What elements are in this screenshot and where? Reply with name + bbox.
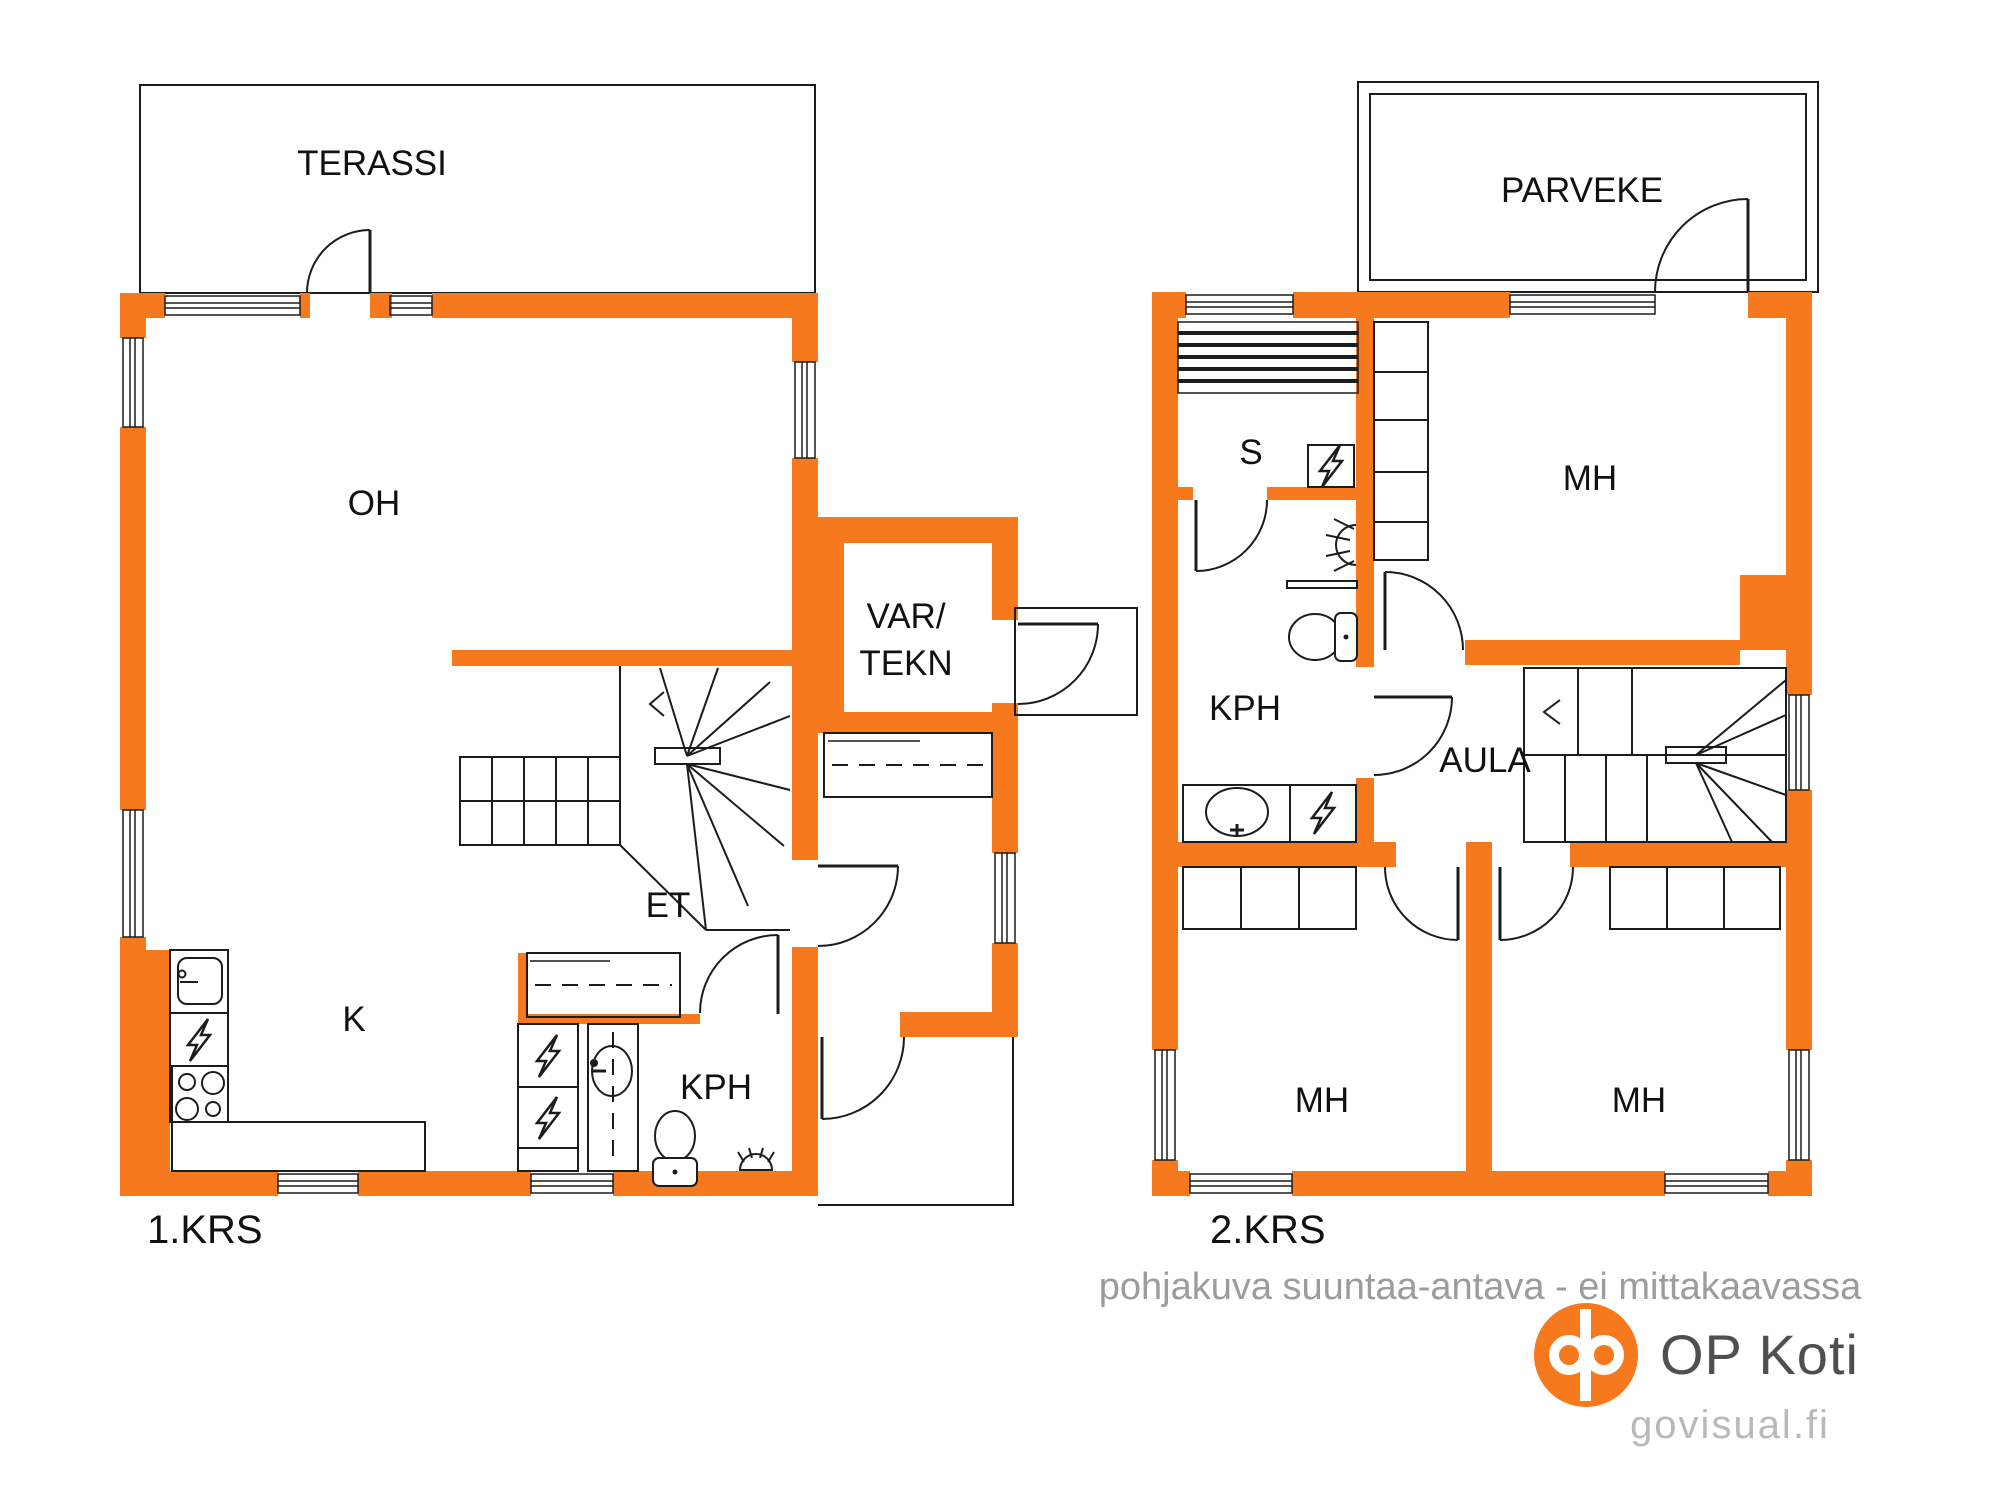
terrace-outline [140, 85, 815, 293]
window [123, 810, 143, 937]
window [1510, 295, 1655, 314]
wardrobe-icon [1374, 322, 1428, 560]
room-label-terassi: TERASSI [297, 144, 447, 183]
kph-door [700, 935, 778, 1014]
lightning-bolt-icon [537, 1097, 559, 1139]
floor-plan-canvas: TERASSI OH VAR/ TEKN ET K KPH 1.KRS [0, 0, 2000, 1500]
window [531, 1174, 613, 1193]
floor1-windows [123, 296, 1015, 1193]
floor2-plan: PARVEKE S MH KPH AULA MH MH 2.KRS [1152, 82, 1818, 1252]
chevron-left-icon [650, 692, 664, 716]
stair-treads [1696, 680, 1786, 842]
window [165, 296, 300, 315]
window [1186, 295, 1293, 314]
site-text: govisual.fi [1630, 1403, 1830, 1447]
op-koti-logo [1534, 1303, 1638, 1407]
window [995, 853, 1015, 943]
floor1-plan: TERASSI OH VAR/ TEKN ET K KPH 1.KRS [120, 85, 1137, 1252]
brand-text: OP Koti [1660, 1323, 1859, 1386]
window [1155, 1050, 1175, 1160]
window [795, 362, 815, 458]
et-door [818, 866, 898, 946]
kitchen-fixtures [170, 950, 425, 1171]
room-label-var: VAR/ [866, 597, 945, 636]
toilet-icon [1289, 613, 1357, 661]
floor2-label: 2.KRS [1210, 1208, 1326, 1252]
sauna-fixtures [1178, 322, 1358, 487]
kitchen-counter [172, 1122, 425, 1171]
sauna-door [1196, 500, 1267, 571]
floor1-walls [120, 293, 1018, 1196]
room-label-mh-top: MH [1563, 459, 1617, 498]
lightning-bolt-icon [1312, 792, 1334, 834]
room-label-et: ET [646, 886, 691, 925]
room-label-s: S [1239, 433, 1262, 472]
room-label-k: K [342, 1000, 365, 1039]
room-label-mh-right: MH [1612, 1081, 1666, 1120]
floor-plan-page: TERASSI OH VAR/ TEKN ET K KPH 1.KRS [0, 0, 2000, 1500]
floor2-stairs [1524, 668, 1786, 842]
window [1665, 1174, 1768, 1193]
lightning-bolt-icon [188, 1019, 210, 1061]
wardrobe-icon [824, 733, 992, 797]
lightning-bolt-icon [1320, 445, 1342, 487]
mh-top-door [1385, 572, 1463, 650]
sauna-bench-icon [1178, 322, 1358, 393]
sink-icon [1206, 788, 1268, 836]
sauna-stove [1308, 445, 1354, 487]
balcony-door [1655, 199, 1748, 292]
room-label-oh: OH [348, 484, 401, 523]
floor-drain-icon [738, 1148, 774, 1170]
floor1-closets [527, 733, 992, 1017]
room-label-kph2: KPH [1209, 689, 1281, 728]
room-label-parveke: PARVEKE [1501, 171, 1663, 210]
porch-door [822, 1037, 904, 1119]
wardrobe-icon [527, 953, 680, 1017]
room-label-aula: AULA [1439, 741, 1531, 780]
disclaimer-text: pohjakuva suuntaa-antava - ei mittakaava… [1099, 1266, 1862, 1308]
floor1-stairs [460, 666, 790, 930]
wardrobe-icon [1183, 867, 1356, 929]
mh-right-door [1500, 867, 1573, 940]
footer: pohjakuva suuntaa-antava - ei mittakaava… [1099, 1266, 1862, 1447]
window [1789, 695, 1809, 790]
room-label-mh-left: MH [1295, 1081, 1349, 1120]
room-label-tekn: TEKN [859, 644, 952, 683]
terrace-door [307, 230, 370, 293]
sink-icon [590, 1046, 632, 1096]
window [123, 338, 143, 427]
mh-left-door [1385, 867, 1458, 940]
lightning-bolt-icon [537, 1035, 559, 1077]
window [278, 1174, 358, 1193]
sink-icon [178, 958, 222, 1004]
window [390, 296, 432, 315]
room-label-kph1: KPH [680, 1068, 752, 1107]
vanity-unit [1183, 785, 1356, 842]
shelf-bar [1287, 581, 1357, 588]
shower-spray-icon [1326, 519, 1356, 571]
entry-door [1015, 608, 1137, 715]
window [1190, 1174, 1292, 1193]
chevron-left-icon [1544, 700, 1560, 724]
floor2-bathroom-fixtures [1183, 519, 1357, 842]
toilet-icon [653, 1111, 697, 1186]
window [1789, 1050, 1809, 1160]
four-burner-hob-icon [172, 1066, 228, 1122]
porch-outline [818, 1037, 1013, 1205]
wardrobe-icon [1610, 867, 1780, 929]
floor1-label: 1.KRS [147, 1208, 263, 1252]
